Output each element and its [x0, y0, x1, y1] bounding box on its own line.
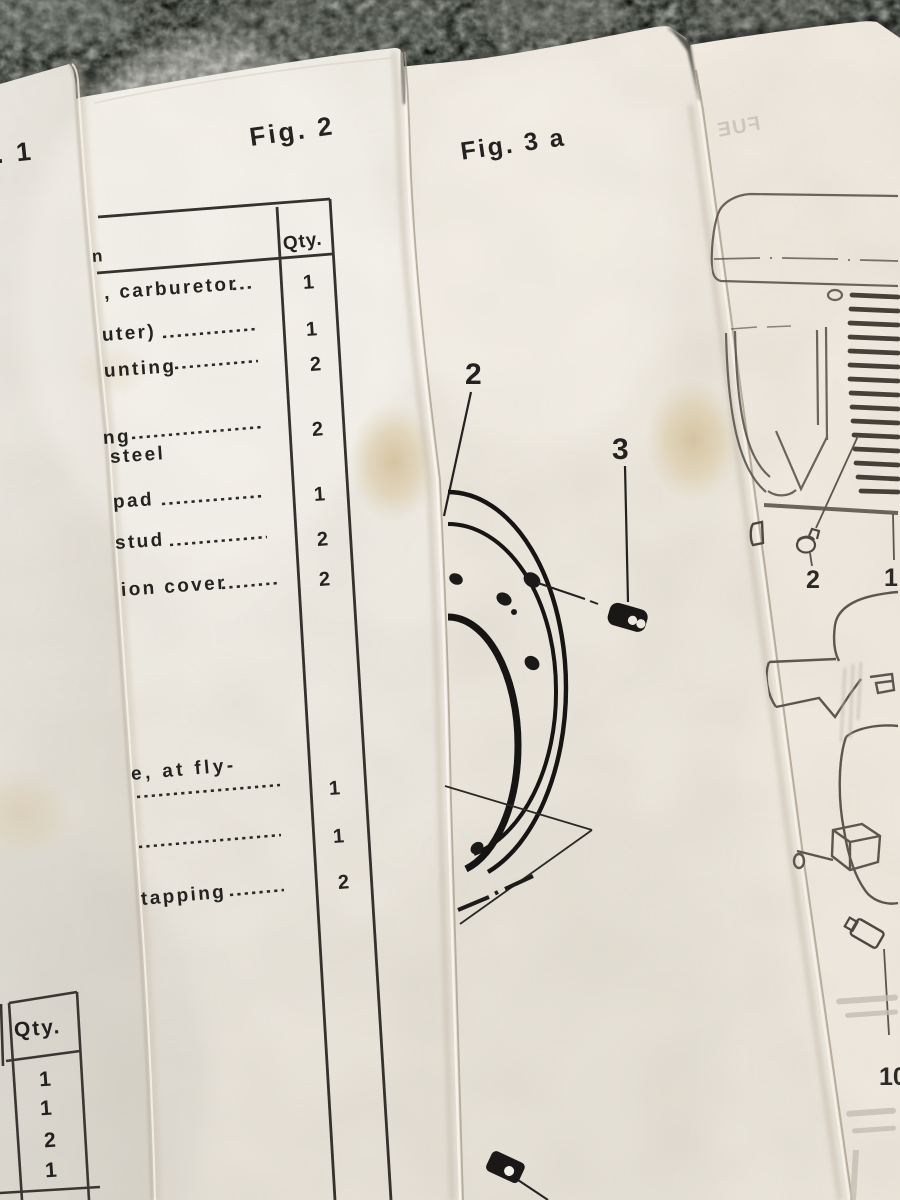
svg-text:1: 1: [313, 483, 326, 506]
svg-text:pad: pad: [112, 489, 154, 513]
svg-text:2: 2: [311, 418, 324, 441]
svg-text:2: 2: [43, 1129, 56, 1153]
svg-text:2: 2: [465, 358, 482, 391]
svg-text:stud: stud: [114, 530, 165, 554]
svg-text:1: 1: [332, 825, 345, 848]
svg-text:Qty.: Qty.: [13, 1015, 62, 1042]
svg-text:2: 2: [316, 528, 329, 551]
svg-text:steel: steel: [109, 443, 166, 468]
svg-text:10: 10: [879, 1063, 900, 1091]
svg-text:2: 2: [318, 568, 331, 591]
svg-text:1: 1: [884, 564, 898, 592]
svg-text:n: n: [91, 246, 103, 266]
svg-text:1: 1: [328, 777, 341, 800]
svg-text:. 1: . 1: [0, 136, 35, 170]
svg-text:uter): uter): [101, 321, 157, 346]
svg-text:1: 1: [305, 318, 318, 341]
svg-text:1: 1: [39, 1097, 53, 1121]
svg-text:2: 2: [309, 353, 322, 376]
svg-text:1: 1: [302, 271, 315, 294]
svg-text:2: 2: [806, 566, 820, 594]
svg-text:1: 1: [38, 1068, 52, 1092]
svg-text:3: 3: [612, 433, 629, 466]
svg-text:2: 2: [337, 871, 350, 894]
svg-text:1: 1: [44, 1159, 58, 1183]
